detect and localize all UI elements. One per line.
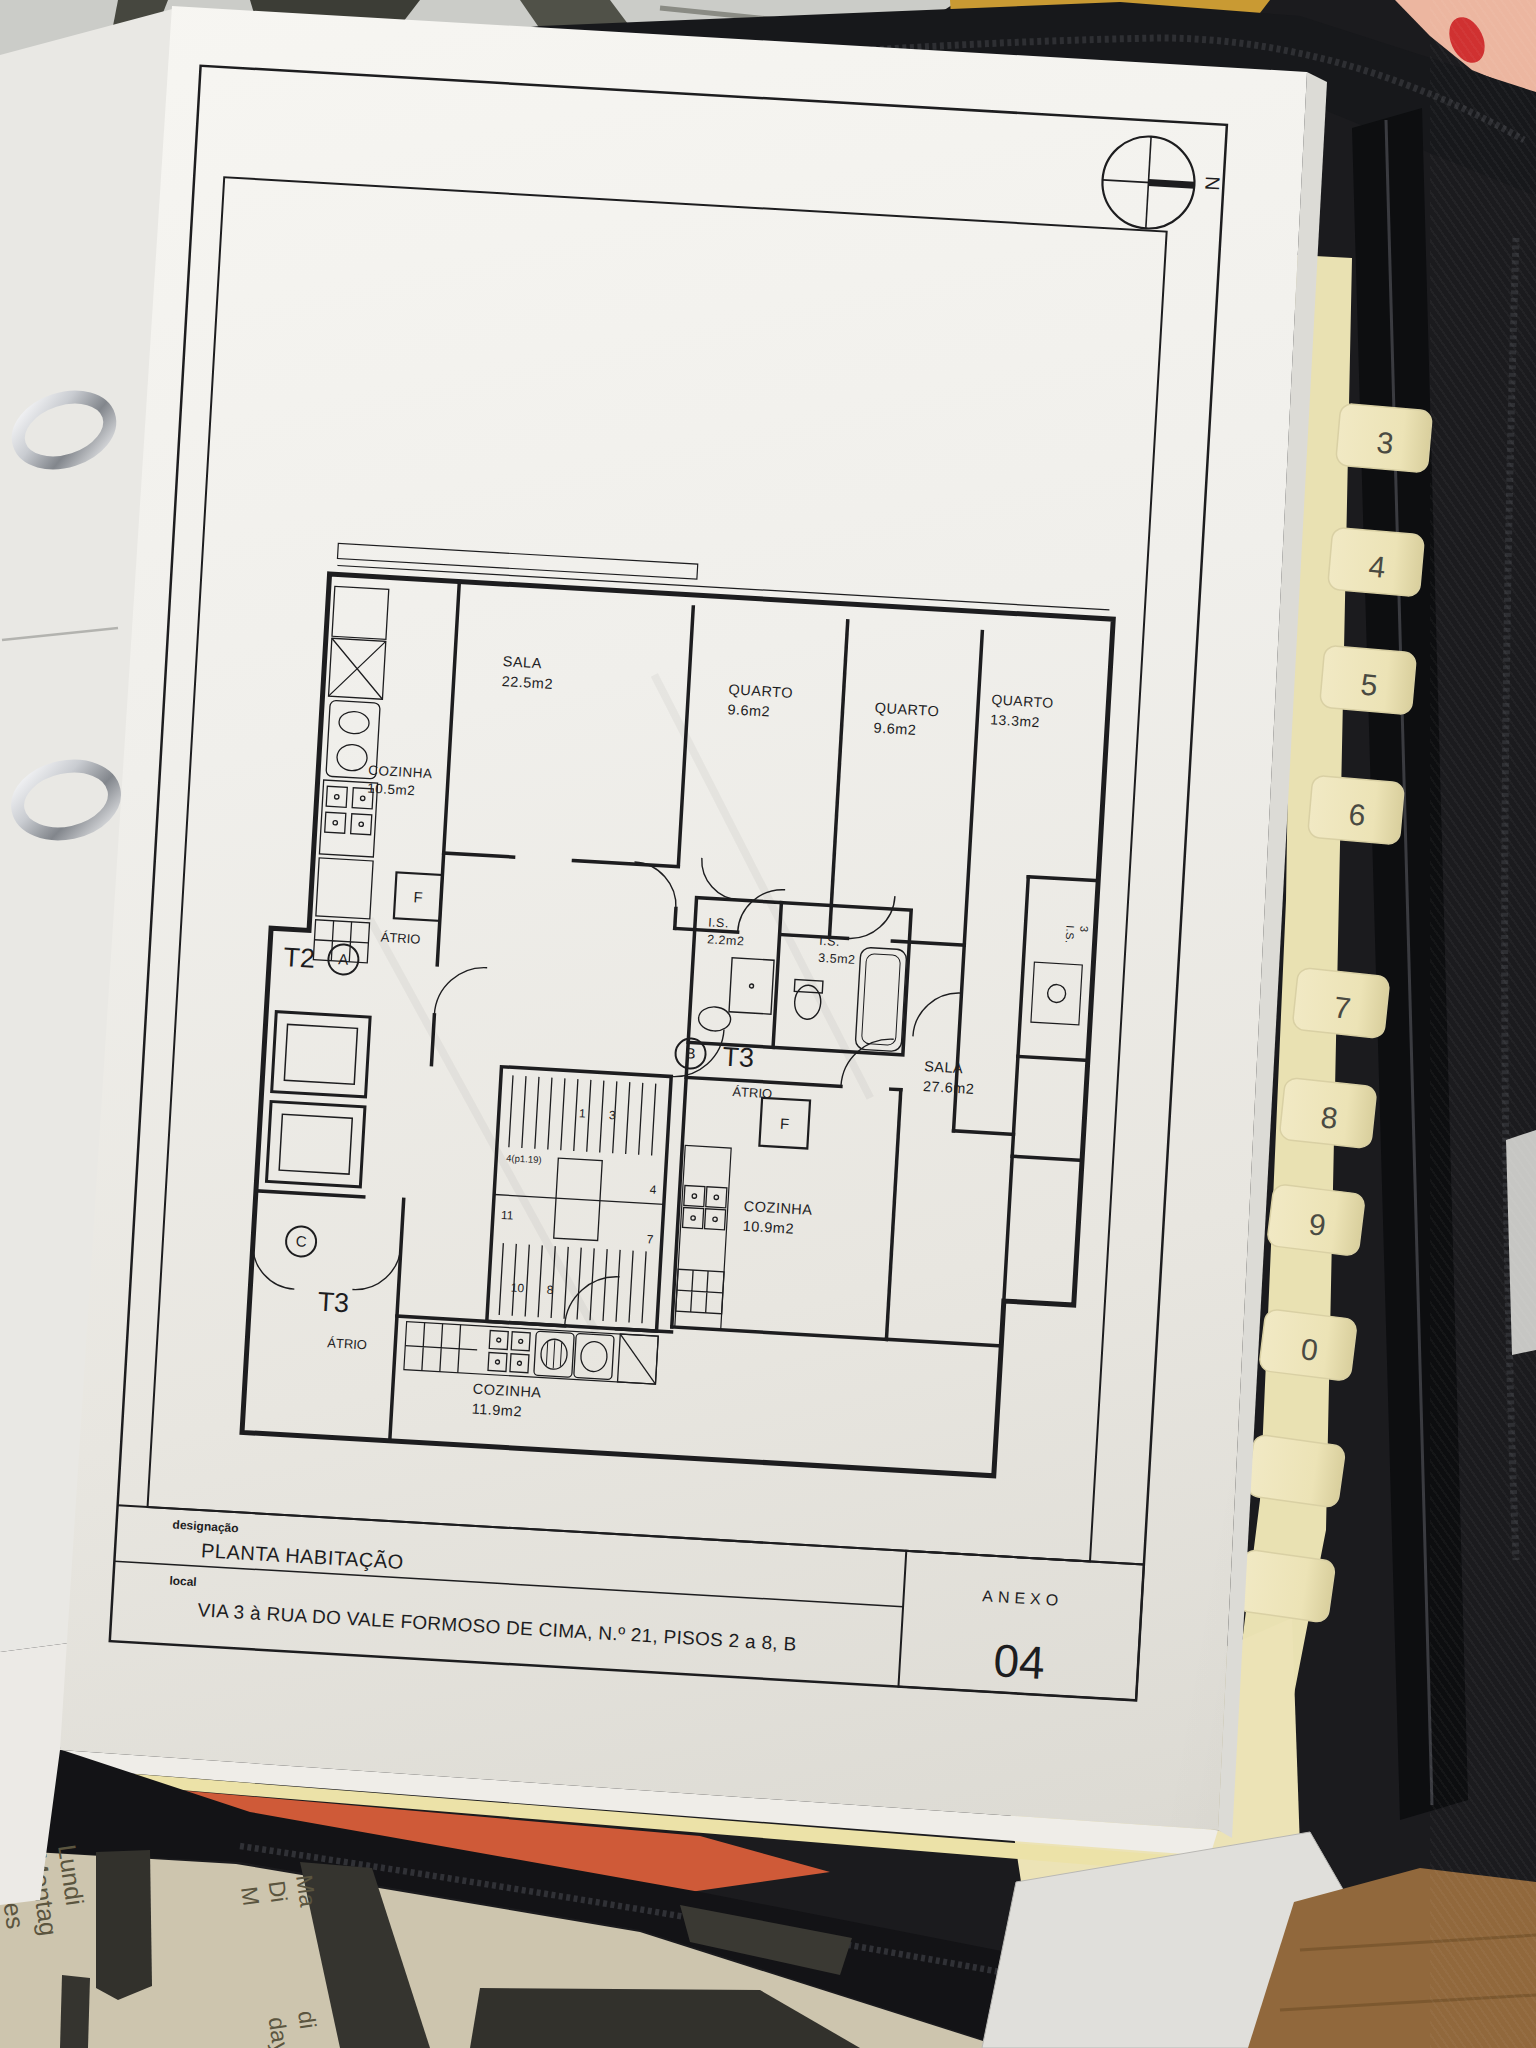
photo-of-binder-with-floor-plan: 3 4 5 6 7 8 9 0 bbox=[0, 0, 1536, 2048]
unit-a-letter: A bbox=[338, 950, 349, 968]
paper-creases bbox=[347, 659, 894, 1347]
stair-number-4: 4 bbox=[649, 1182, 657, 1196]
room-is2-name: I.S. bbox=[819, 934, 841, 949]
room-cozinha-t3c-name: COZINHA bbox=[472, 1381, 542, 1401]
unit-t2-label: T2 bbox=[283, 942, 316, 974]
unit-t3c-label: T3 bbox=[317, 1287, 350, 1319]
anexo-number: 04 bbox=[992, 1634, 1046, 1689]
local-value: VIA 3 à RUA DO VALE FORMOSO DE CIMA, N.º… bbox=[197, 1599, 797, 1654]
stair-number-3: 3 bbox=[608, 1108, 616, 1122]
unit-b-letter: B bbox=[685, 1044, 696, 1062]
room-sala-t3-name: SALA bbox=[924, 1058, 964, 1076]
calendar-word: Di bbox=[264, 1879, 293, 1904]
compass-north-label: N bbox=[1201, 176, 1224, 192]
room-quarto1-area: 9.6m2 bbox=[727, 701, 771, 719]
plan-walls bbox=[242, 541, 1115, 1480]
elevator-shafts bbox=[266, 1012, 370, 1187]
room-is-shaft-name: I.S. bbox=[1064, 925, 1077, 944]
stair-number-1: 1 bbox=[579, 1106, 587, 1120]
calendar-word: Ma bbox=[291, 1873, 321, 1908]
fridge-t3b-label: F bbox=[780, 1115, 790, 1132]
atrio-t3b-label: ÁTRIO bbox=[732, 1084, 773, 1101]
room-cozinha-t3c-area: 11.9m2 bbox=[471, 1401, 522, 1420]
tab-blank-1 bbox=[1246, 1434, 1346, 1508]
stair-number-11: 11 bbox=[501, 1208, 515, 1223]
tab-label-3: 3 bbox=[1375, 425, 1395, 460]
atrio-t3c-label: ÁTRIO bbox=[327, 1335, 368, 1352]
room-quarto2-area: 9.6m2 bbox=[873, 720, 917, 738]
room-sala-t2-name: SALA bbox=[502, 653, 542, 671]
tab-label-4: 4 bbox=[1367, 549, 1387, 584]
local-label: local bbox=[169, 1573, 197, 1589]
designacao-label: designação bbox=[172, 1518, 239, 1536]
room-quarto1-name: QUARTO bbox=[728, 681, 793, 701]
room-cozinha-t3b-name: COZINHA bbox=[743, 1198, 813, 1218]
architectural-drawing: N bbox=[74, 6, 1310, 1775]
calendar-word: di bbox=[293, 2009, 321, 2030]
kitchen-t3c-fixtures bbox=[404, 1322, 658, 1384]
room-is-shaft-area: 3 bbox=[1078, 926, 1090, 933]
door-swings bbox=[249, 833, 968, 1347]
tab-blank-2 bbox=[1236, 1549, 1336, 1623]
calendar-word: day bbox=[264, 2015, 295, 2048]
unit-t3b-label: T3 bbox=[722, 1041, 755, 1073]
stair-number-10: 10 bbox=[510, 1281, 524, 1296]
unit-labels: T2 A ÁTRIO T3 B ÁTRIO T3 C ÁTRIO F F bbox=[261, 881, 802, 1376]
anexo-label: ANEXO bbox=[982, 1587, 1064, 1609]
stair-number-p: 4(p1.19) bbox=[506, 1152, 542, 1165]
room-cozinha-t2-area: 10.5m2 bbox=[367, 781, 416, 799]
room-cozinha-t2-name: COZINHA bbox=[368, 763, 433, 782]
tab-label-6: 6 bbox=[1347, 797, 1367, 832]
room-is1-name: I.S. bbox=[708, 915, 730, 930]
fridge-t2-label: F bbox=[413, 888, 423, 905]
unit-c-letter: C bbox=[295, 1232, 307, 1250]
floor-plan-svg: N bbox=[74, 6, 1310, 1775]
room-sala-t3-area: 27.6m2 bbox=[923, 1078, 975, 1097]
room-is2-area: 3.5m2 bbox=[818, 951, 856, 967]
room-quarto2-name: QUARTO bbox=[874, 700, 939, 720]
calendar-word: M bbox=[236, 1885, 264, 1908]
room-cozinha-t3b-area: 10.9m2 bbox=[742, 1218, 794, 1237]
tab-label-5: 5 bbox=[1359, 667, 1379, 702]
north-compass: N bbox=[1100, 134, 1226, 233]
room-sala-t2-area: 22.5m2 bbox=[501, 673, 553, 692]
room-quarto3-area: 13.3m2 bbox=[990, 711, 1041, 730]
room-quarto3-name: QUARTO bbox=[991, 691, 1054, 711]
stair-number-7: 7 bbox=[646, 1232, 654, 1246]
room-is1-area: 2.2m2 bbox=[707, 932, 745, 948]
stair-number-8: 8 bbox=[546, 1283, 554, 1297]
